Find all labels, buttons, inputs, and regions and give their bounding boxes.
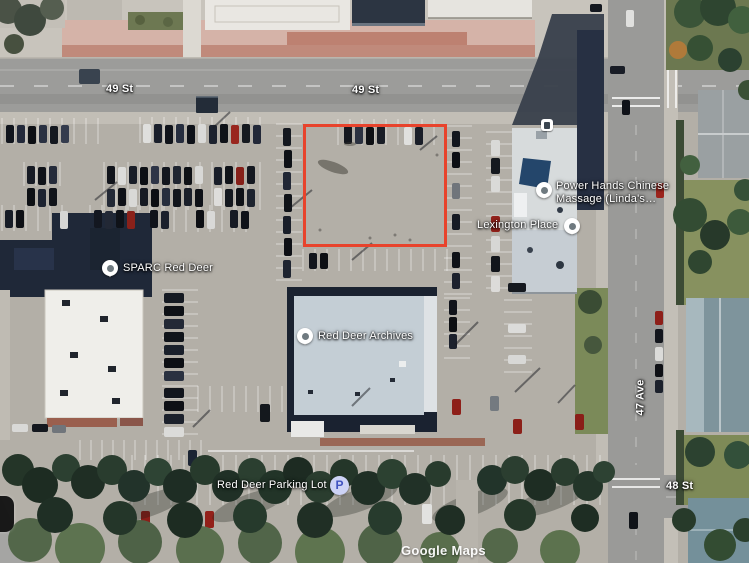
- google-maps-watermark[interactable]: Google Maps: [401, 543, 486, 558]
- poi-marker-icon[interactable]: [102, 260, 118, 276]
- street-label-48st: 48 St: [666, 480, 693, 493]
- bus-glyph: [544, 122, 550, 129]
- poi-label-line1[interactable]: Power Hands Chinese: [556, 180, 676, 193]
- highlight-rectangle: [303, 124, 447, 247]
- street-label-47ave: 47 Ave: [635, 376, 648, 420]
- street-label-49st-east: 49 St: [352, 84, 379, 97]
- poi-lexington-place[interactable]: Lexington Place: [477, 219, 558, 232]
- street-label-49st-west: 49 St: [106, 83, 133, 96]
- map-viewport[interactable]: 49 St 49 St 47 Ave 48 St SPARC Red Deer …: [0, 0, 749, 563]
- poi-power-hands-massage[interactable]: Power Hands Chinese Massage (Linda's…: [556, 180, 676, 206]
- poi-label-line2[interactable]: Massage (Linda's…: [556, 193, 676, 206]
- map-control-partial[interactable]: [0, 496, 14, 532]
- bus-stop-icon[interactable]: [541, 119, 553, 131]
- poi-marker-icon[interactable]: [297, 328, 313, 344]
- poi-marker-icon-lexington[interactable]: [564, 218, 580, 234]
- poi-marker-icon-power-hands[interactable]: [536, 182, 552, 198]
- poi-label[interactable]: Red Deer Archives: [318, 330, 413, 343]
- parking-badge-icon[interactable]: P: [330, 476, 349, 495]
- poi-parking-lot-p7[interactable]: Red Deer Parking Lot P7: [217, 479, 344, 492]
- poi-red-deer-archives[interactable]: Red Deer Archives: [297, 328, 413, 344]
- poi-sparc-red-deer[interactable]: SPARC Red Deer: [102, 260, 213, 276]
- poi-label[interactable]: SPARC Red Deer: [123, 262, 213, 275]
